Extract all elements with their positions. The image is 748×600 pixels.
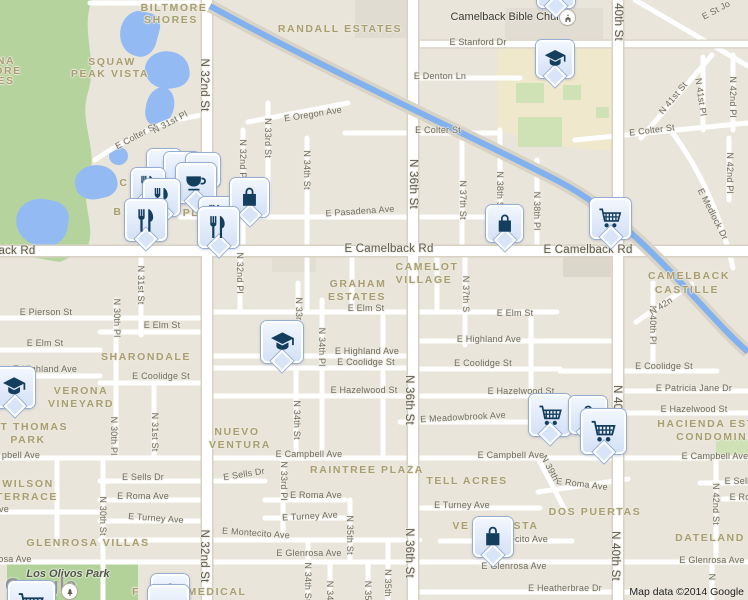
park-poi[interactable] — [62, 584, 77, 599]
shopping-bag-marker[interactable] — [473, 517, 513, 557]
restaurant-icon — [133, 207, 160, 234]
graduation-cap-icon — [269, 329, 296, 356]
plain-marker[interactable] — [148, 585, 189, 600]
coffee-icon — [183, 170, 209, 196]
shopping-bag-icon — [480, 524, 506, 550]
shopping-bag-icon — [493, 212, 517, 236]
plain-marker[interactable] — [537, 0, 575, 8]
restaurant-marker[interactable] — [125, 199, 167, 241]
tree-icon — [65, 587, 75, 597]
cart-icon — [597, 205, 623, 231]
cart-marker[interactable] — [581, 409, 626, 454]
graduation-cap-icon — [1, 374, 27, 400]
cart-marker[interactable] — [590, 198, 631, 239]
cart-marker[interactable] — [8, 581, 55, 600]
cart-icon — [589, 417, 618, 446]
map-canvas[interactable]: Camelback Bible Church Los Olivos Park a… — [0, 0, 748, 600]
school-marker[interactable] — [261, 321, 303, 363]
graduation-cap-icon — [543, 47, 567, 71]
map-attribution: Map data ©2014 Google — [629, 586, 744, 598]
cart-icon — [537, 402, 564, 429]
cart-icon — [16, 589, 46, 600]
restaurant-marker[interactable] — [198, 207, 239, 248]
cart-marker[interactable] — [529, 394, 571, 436]
church-icon — [563, 13, 573, 23]
school-marker[interactable] — [0, 367, 35, 408]
shopping-bag-icon — [237, 185, 262, 210]
markers-layer — [0, 0, 748, 600]
church-poi[interactable] — [560, 10, 575, 25]
shopping-bag-marker[interactable] — [486, 205, 523, 242]
school-marker[interactable] — [536, 40, 574, 78]
restaurant-icon — [205, 214, 231, 240]
